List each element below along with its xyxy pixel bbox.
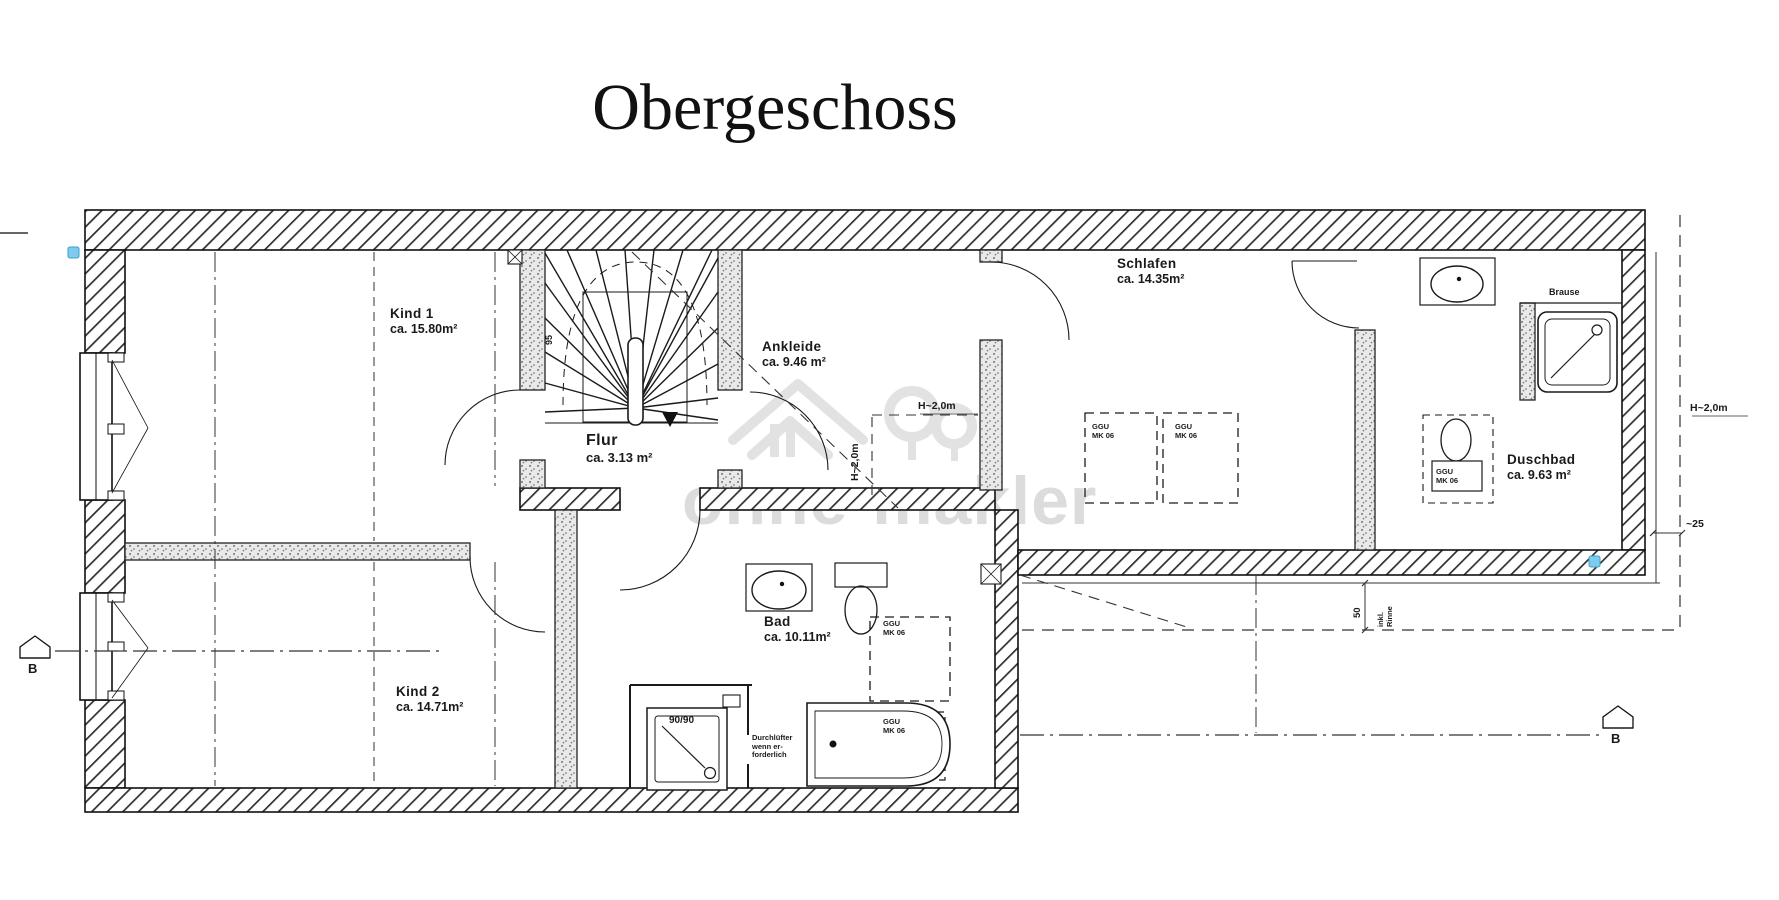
gutter-note: inkl. Rinne [1377, 606, 1394, 627]
page-title: Obergeschoss [495, 70, 1055, 146]
room-label-schlafen: Schlafen ca. 14.35m² [1117, 256, 1184, 287]
eaves-offset-label: ~25 [1686, 518, 1704, 530]
fixtures [508, 250, 1622, 790]
height-2m-label-mid: H~2,0m [918, 400, 956, 412]
roof-window-label: GGU MK 06 [883, 620, 905, 637]
door-arc-bad [620, 510, 700, 590]
toilet [845, 586, 877, 634]
room-area: ca. 15.80m² [390, 322, 457, 337]
room-label-kind2: Kind 2 ca. 14.71m² [396, 684, 463, 715]
shower-label: Brause [1549, 288, 1580, 297]
toilet-cistern [835, 563, 887, 587]
roof-window-outline [870, 617, 950, 701]
room-area: ca. 14.71m² [396, 700, 463, 715]
room-area: ca. 14.35m² [1117, 272, 1184, 287]
room-label-bad: Bad ca. 10.11m² [764, 614, 831, 645]
room-area: ca. 10.11m² [764, 630, 831, 645]
room-name: Bad [764, 614, 831, 630]
height-2m-label-right: H~2,0m [1690, 402, 1728, 414]
room-label-flur: Flur ca. 3.13 m² [586, 431, 653, 465]
section-arrow-icon [20, 636, 50, 658]
stair-newel [628, 338, 643, 425]
section-marker-b-right: B [1611, 731, 1620, 746]
vent-note-line: forderlich [752, 751, 792, 760]
door-arc-schlafen [991, 262, 1069, 340]
roof-window-label: GGU MK 06 [1092, 423, 1114, 440]
height-2m-line-mid [872, 415, 978, 497]
roof-window-model: MK 06 [1436, 477, 1458, 486]
roof-window-model: MK 06 [1175, 432, 1197, 441]
room-area: ca. 3.13 m² [586, 450, 653, 465]
room-label-ankleide: Ankleide ca. 9.46 m² [762, 339, 826, 370]
room-name: Ankleide [762, 339, 826, 355]
roof-window-label: GGU MK 06 [1175, 423, 1197, 440]
room-label-duschbad: Duschbad ca. 9.63 m² [1507, 452, 1575, 483]
height-2m-label-mid-vertical: H~2,0m [849, 443, 861, 481]
gutter-note-line: Rinne [1386, 606, 1395, 627]
roof-window-model: MK 06 [1092, 432, 1114, 441]
room-area: ca. 9.63 m² [1507, 468, 1575, 483]
gutter-width-label: 50 [1352, 607, 1363, 618]
room-name: Flur [586, 431, 653, 450]
roof-window-model: MK 06 [883, 727, 905, 736]
door-arc-kind2 [470, 557, 545, 632]
roof-window-model: MK 06 [883, 629, 905, 638]
room-area: ca. 9.46 m² [762, 355, 826, 370]
floor-plan-page: ohne-makler [0, 0, 1779, 900]
staircase [545, 250, 718, 427]
roof-window-label: GGU MK 06 [883, 718, 905, 735]
vent-note: Durchlüfter wenn er- forderlich [752, 734, 792, 760]
shower-tray-size-label: 90/90 [667, 717, 696, 726]
bathtub [807, 703, 950, 786]
roof-window-label: GGU MK 06 [1436, 468, 1458, 485]
door-arc-duschbad [1292, 261, 1359, 328]
section-arrow-icon [1603, 706, 1633, 728]
section-marker-b-left: B [28, 661, 37, 676]
stair-direction-arrow-icon [662, 412, 678, 427]
room-name: Kind 2 [396, 684, 463, 700]
blue-marker-dot [1589, 556, 1600, 567]
stair-width-label: 95 [544, 335, 554, 345]
toilet [1441, 419, 1471, 461]
room-label-kind1: Kind 1 ca. 15.80m² [390, 306, 457, 337]
duct-box [723, 695, 740, 707]
door-arc-kind1 [445, 390, 520, 465]
room-name: Schlafen [1117, 256, 1184, 272]
room-name: Duschbad [1507, 452, 1575, 468]
blue-marker-dot [68, 247, 79, 258]
room-name: Kind 1 [390, 306, 457, 322]
